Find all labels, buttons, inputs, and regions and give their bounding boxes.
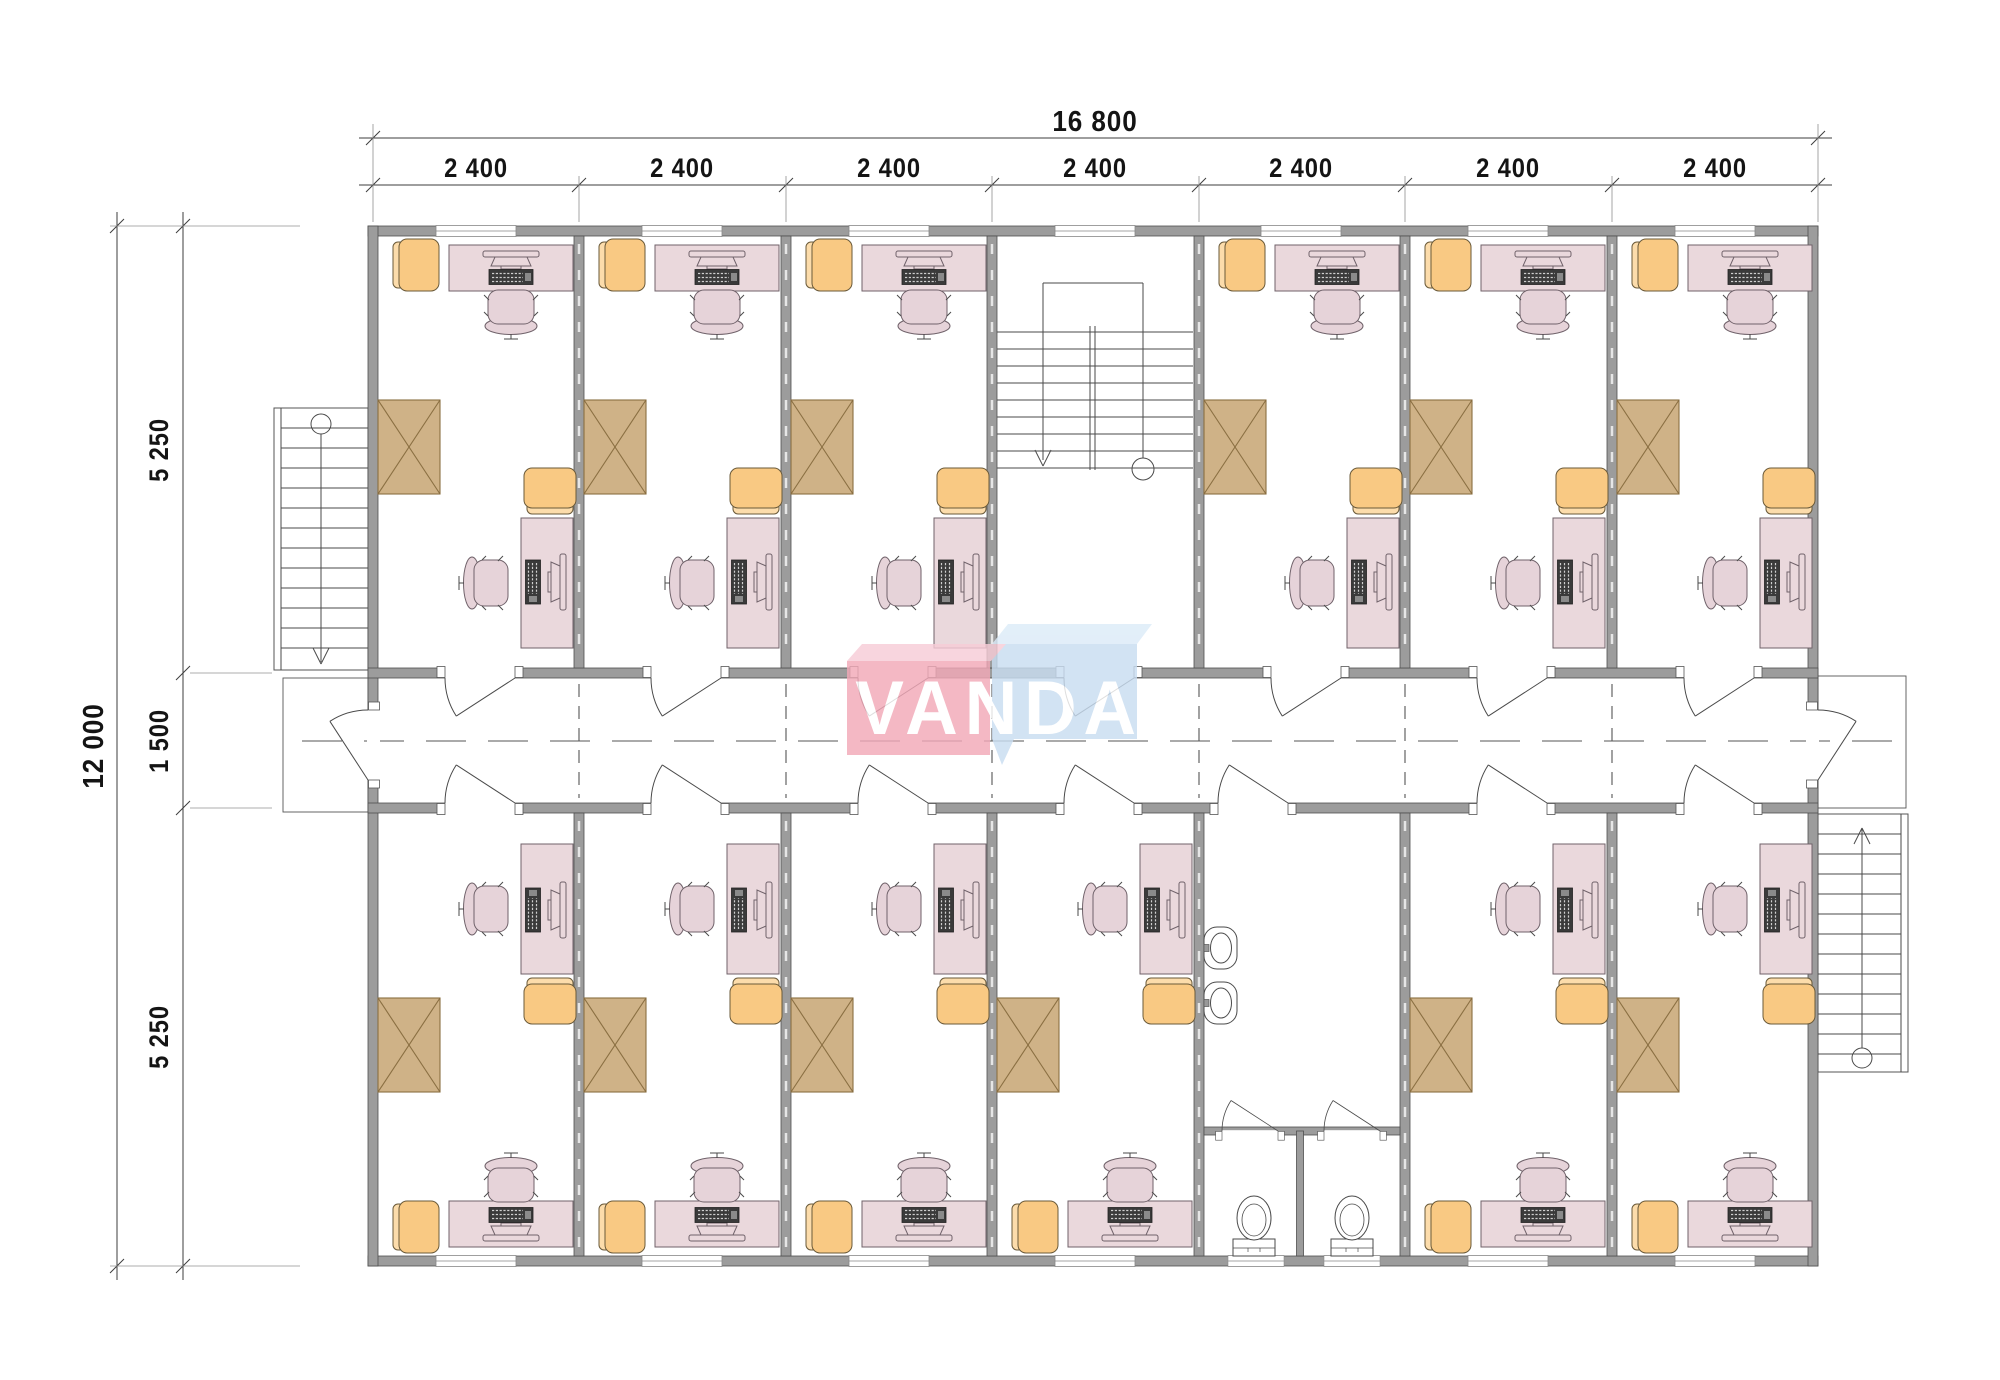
- floor-plan-page: 16 800 2 400 2 400 2 400 2 400 2 400 2 4…: [0, 0, 2000, 1380]
- bathroom: [1204, 927, 1400, 1256]
- office-room-bottom-6: [1410, 844, 1608, 1253]
- door-swing: [1210, 765, 1296, 815]
- dim-label-corridor: 1 500: [145, 709, 175, 773]
- door-swing: [1676, 765, 1762, 815]
- dim-label-bay-3: 2 400: [857, 154, 921, 184]
- sink: [1204, 982, 1237, 1024]
- watermark-text: VANDA: [855, 666, 1143, 751]
- toilet: [1233, 1196, 1275, 1256]
- door-swing: [643, 666, 729, 716]
- wc-stall-door: [1216, 1101, 1285, 1141]
- office-room-bottom-7: [1617, 844, 1815, 1253]
- door-swing: [1676, 666, 1762, 716]
- door-swing: [1056, 765, 1142, 815]
- staircase-left: [274, 408, 368, 812]
- office-room-top-1: [378, 239, 576, 648]
- entry-landing-left: [283, 678, 368, 812]
- door-swing: [437, 765, 523, 815]
- floor-plan-drawing: 16 800 2 400 2 400 2 400 2 400 2 400 2 4…: [0, 0, 2000, 1380]
- dim-label-bay-2: 2 400: [650, 154, 714, 184]
- office-room-bottom-2: [584, 844, 782, 1253]
- door-swing: [1469, 666, 1555, 716]
- dimension-lines-top: 16 800 2 400 2 400 2 400 2 400 2 400 2 4…: [359, 105, 1832, 222]
- office-room-top-6: [1410, 239, 1608, 648]
- toilet: [1331, 1196, 1373, 1256]
- sink: [1204, 927, 1237, 969]
- dimension-lines-left: 12 000 5 250 1 500 5 250: [77, 212, 300, 1280]
- stair-start-marker: [1132, 458, 1154, 480]
- office-room-bottom-4: [997, 844, 1195, 1253]
- entry-landing-right: [1818, 676, 1906, 808]
- dim-label-row-top: 5 250: [145, 418, 175, 482]
- door-swing: [437, 666, 523, 716]
- wc-stall-door: [1318, 1101, 1387, 1141]
- door-swing: [1263, 666, 1349, 716]
- dim-label-row-bottom: 5 250: [145, 1005, 175, 1069]
- door-swing: [643, 765, 729, 815]
- door-swing: [850, 765, 936, 815]
- door-swing: [1469, 765, 1555, 815]
- office-room-bottom-3: [791, 844, 989, 1253]
- office-room-top-2: [584, 239, 782, 648]
- office-room-top-7: [1617, 239, 1815, 648]
- office-room-top-5: [1204, 239, 1402, 648]
- dim-label-total-width: 16 800: [1052, 105, 1137, 138]
- office-room-top-3: [791, 239, 989, 648]
- dim-label-total-depth: 12 000: [77, 703, 110, 788]
- dim-label-bay-5: 2 400: [1269, 154, 1333, 184]
- dim-label-bay-7: 2 400: [1683, 154, 1747, 184]
- dim-label-bay-1: 2 400: [444, 154, 508, 184]
- staircase-right: [1818, 676, 1908, 1072]
- dim-label-bay-4: 2 400: [1063, 154, 1127, 184]
- dim-label-bay-6: 2 400: [1476, 154, 1540, 184]
- staircase-central: [997, 283, 1193, 480]
- office-room-bottom-1: [378, 844, 576, 1253]
- vanda-watermark: VANDA: [847, 624, 1152, 765]
- wc-stall-divider: [1297, 1131, 1304, 1256]
